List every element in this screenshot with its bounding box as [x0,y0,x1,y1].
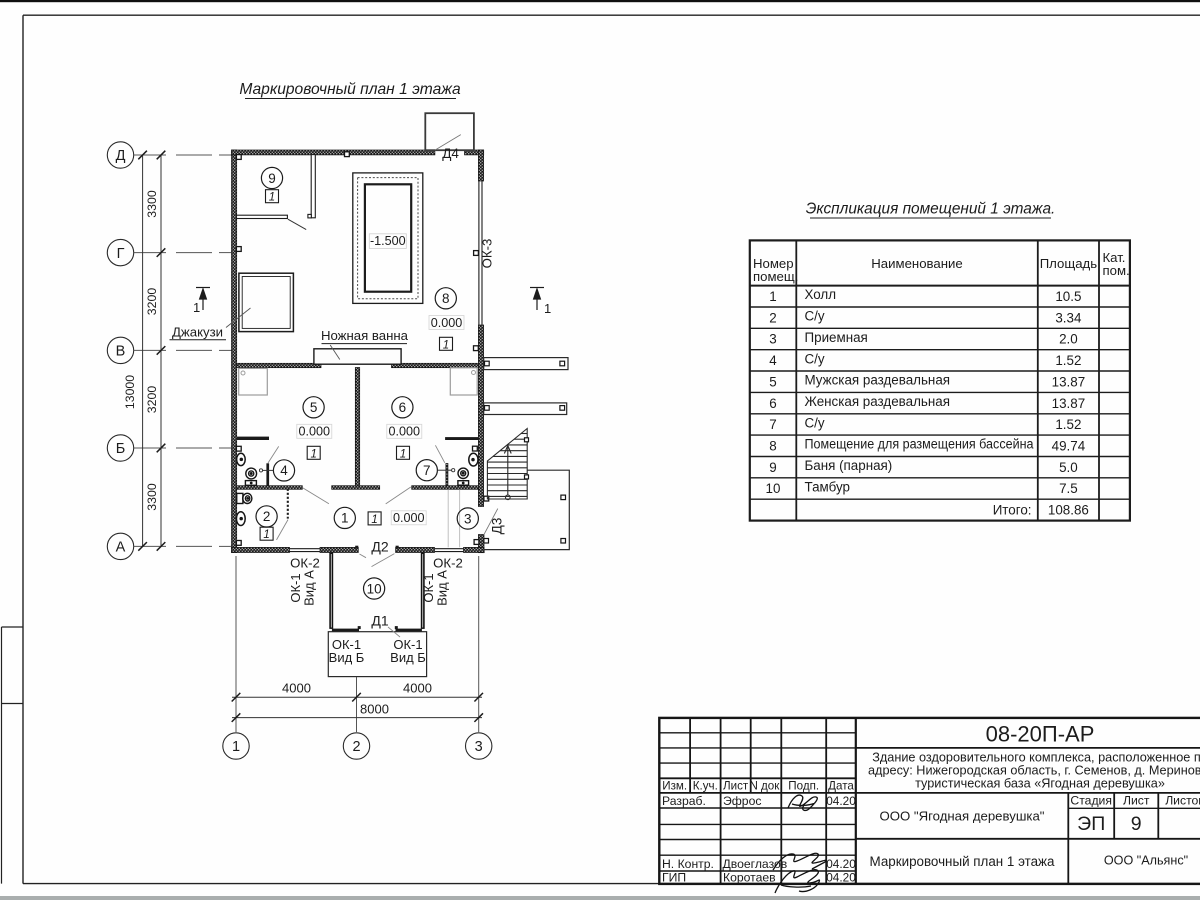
svg-text:Приемная: Приемная [805,330,868,345]
svg-text:1: 1 [400,448,406,460]
svg-text:Холл: Холл [805,287,837,302]
svg-text:Н. Контр.: Н. Контр. [662,857,714,871]
svg-text:4000: 4000 [282,681,311,696]
svg-text:13000: 13000 [123,375,137,409]
svg-text:2.0: 2.0 [1059,332,1078,347]
svg-text:1: 1 [544,301,551,316]
svg-text:2: 2 [352,739,360,755]
svg-text:3: 3 [769,332,776,347]
svg-text:5: 5 [769,374,776,389]
svg-text:Экспликация помещений 1 этажа.: Экспликация помещений 1 этажа. [806,201,1056,218]
svg-text:Вид Б: Вид Б [329,650,365,665]
svg-text:Женская раздевальная: Женская раздевальная [805,394,950,409]
svg-text:Наименование: Наименование [871,256,962,271]
svg-text:3300: 3300 [145,483,159,511]
svg-text:Баня (парная): Баня (парная) [805,458,893,473]
svg-text:1: 1 [443,339,449,351]
svg-text:3200: 3200 [145,386,159,414]
svg-text:Помещение для размещения бассе: Помещение для размещения бассейна [805,437,1035,452]
svg-text:N док.: N док. [749,780,782,793]
svg-text:04.20: 04.20 [826,857,856,871]
svg-text:Здание оздоровительного компле: Здание оздоровительного комплекса, распо… [872,751,1200,765]
svg-text:-1.500: -1.500 [370,234,406,248]
svg-text:8: 8 [769,439,776,454]
svg-text:5.0: 5.0 [1059,460,1078,475]
svg-text:1: 1 [269,192,275,204]
svg-text:ООО "Ягодная деревушка": ООО "Ягодная деревушка" [880,809,1045,824]
svg-text:Лист: Лист [723,780,749,793]
svg-text:Д1: Д1 [371,613,388,629]
svg-text:1.52: 1.52 [1055,353,1081,368]
svg-text:7.5: 7.5 [1059,481,1078,496]
svg-text:04.20: 04.20 [826,871,856,885]
svg-text:Маркировочный план 1 этажа: Маркировочный план 1 этажа [239,81,461,98]
svg-text:С/у: С/у [805,309,825,324]
svg-text:2: 2 [263,509,271,524]
svg-text:49.74: 49.74 [1052,439,1086,454]
svg-text:0.000: 0.000 [299,425,331,439]
svg-text:3: 3 [464,511,472,526]
svg-text:Джакузи: Джакузи [172,325,223,340]
svg-text:Г: Г [117,246,125,262]
svg-text:1: 1 [769,289,776,304]
svg-text:Вид А: Вид А [302,570,317,606]
svg-text:9: 9 [769,460,776,475]
svg-text:10.5: 10.5 [1055,289,1081,304]
svg-text:пом.: пом. [1103,263,1130,278]
svg-text:4: 4 [280,463,288,478]
svg-text:Изм.: Изм. [662,780,687,793]
svg-text:Вид А: Вид А [435,570,450,606]
svg-text:Вид Б: Вид Б [390,650,426,665]
svg-text:туристическая база «Ягодная де: туристическая база «Ягодная деревушка» [915,777,1165,791]
svg-text:Коротаев: Коротаев [723,871,776,885]
svg-text:Листов: Листов [1165,794,1200,808]
svg-text:Итого:: Итого: [993,503,1032,518]
svg-text:А: А [116,540,126,556]
svg-text:Д2: Д2 [371,539,388,555]
svg-text:Тамбур: Тамбур [805,479,850,494]
svg-text:0.000: 0.000 [393,511,425,525]
svg-text:ОК-3: ОК-3 [480,239,495,269]
svg-text:помещ.: помещ. [753,269,798,284]
svg-text:К.уч.: К.уч. [693,780,718,793]
svg-text:ЭП: ЭП [1077,813,1105,835]
svg-text:08-20П-АР: 08-20П-АР [986,722,1095,747]
svg-text:4: 4 [769,353,777,368]
svg-text:ГИП: ГИП [662,871,686,885]
svg-text:7: 7 [423,463,431,478]
svg-text:Ножная ванна: Ножная ванна [321,328,409,343]
svg-text:1: 1 [341,511,349,526]
svg-text:10: 10 [766,481,781,496]
svg-text:10: 10 [367,581,382,596]
svg-text:04.20: 04.20 [826,794,856,808]
svg-text:3300: 3300 [145,190,159,218]
svg-text:3: 3 [475,739,483,755]
svg-text:С/у: С/у [805,415,825,430]
svg-text:9: 9 [1131,813,1142,835]
svg-text:13.87: 13.87 [1052,374,1086,389]
svg-text:ООО "Альянс": ООО "Альянс" [1104,854,1188,868]
svg-text:Д: Д [116,148,126,164]
svg-text:5: 5 [310,400,318,415]
svg-text:1: 1 [263,529,269,541]
svg-text:9: 9 [268,171,276,186]
svg-text:адресу: Нижегородская область,: адресу: Нижегородская область, г. Семено… [868,764,1200,778]
svg-text:Мужская раздевальная: Мужская раздевальная [805,373,951,388]
svg-text:3.34: 3.34 [1055,310,1082,325]
svg-text:ОК-2: ОК-2 [433,556,463,571]
svg-text:0.000: 0.000 [389,425,421,439]
svg-text:1: 1 [193,300,200,315]
svg-text:4000: 4000 [403,681,432,696]
svg-text:Разраб.: Разраб. [662,794,706,808]
svg-text:Лист: Лист [1123,794,1150,808]
svg-text:Подп.: Подп. [788,780,819,793]
svg-text:С/у: С/у [805,351,825,366]
svg-text:108.86: 108.86 [1048,503,1089,518]
svg-text:13.87: 13.87 [1052,396,1086,411]
svg-text:Дата: Дата [828,780,854,793]
svg-text:6: 6 [769,396,776,411]
svg-text:Эфрос: Эфрос [723,794,761,808]
svg-text:Площадь: Площадь [1040,256,1098,271]
svg-text:7: 7 [769,417,776,432]
svg-text:8: 8 [442,291,450,306]
svg-text:ОК-2: ОК-2 [290,556,320,571]
svg-text:0.000: 0.000 [431,316,463,330]
svg-text:Б: Б [116,441,126,457]
svg-text:1: 1 [310,448,316,460]
svg-text:1: 1 [371,514,377,526]
svg-text:1.52: 1.52 [1055,417,1081,432]
svg-text:8000: 8000 [360,701,389,716]
svg-text:2: 2 [769,310,776,325]
svg-text:В: В [116,344,126,360]
svg-text:Д4: Д4 [442,146,459,161]
svg-text:1: 1 [232,739,240,755]
svg-text:Стадия: Стадия [1070,794,1112,808]
svg-text:3200: 3200 [145,288,159,316]
svg-text:Маркировочный план 1 этажа: Маркировочный план 1 этажа [870,854,1055,869]
svg-text:6: 6 [399,400,407,415]
